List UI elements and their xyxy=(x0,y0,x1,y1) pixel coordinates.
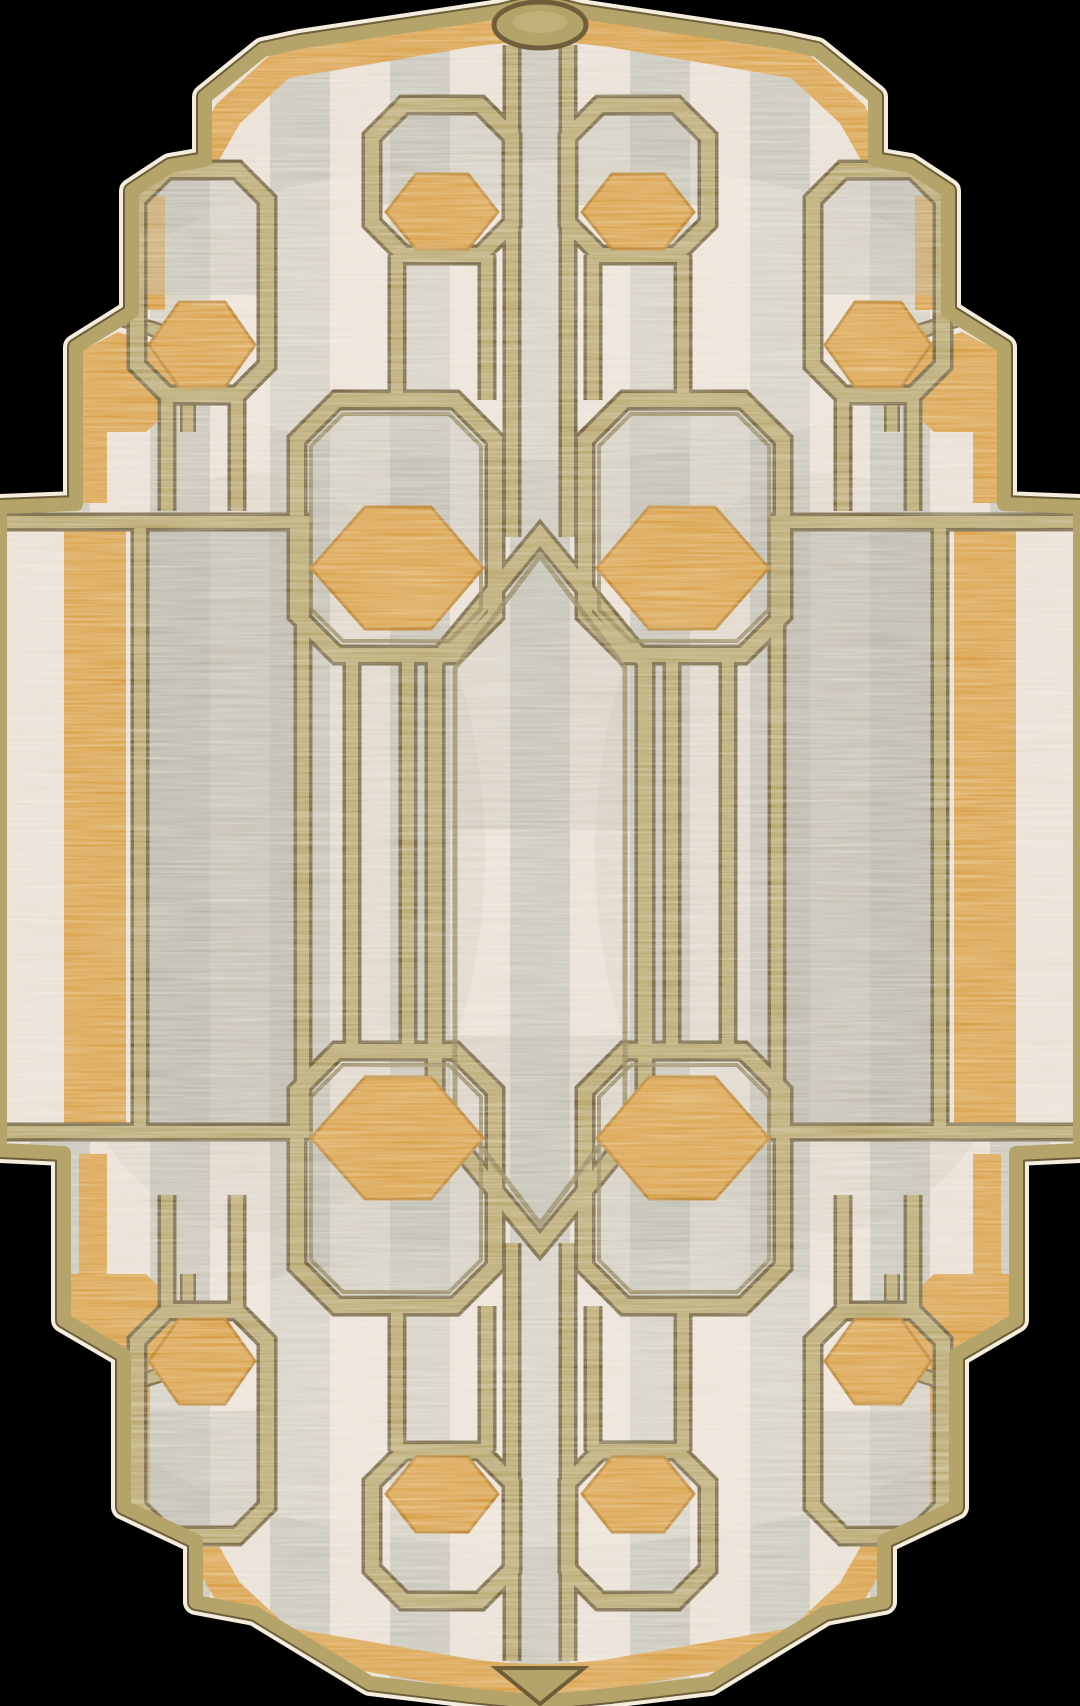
rug-product-photo: Art Deco shaped area rug with gold geome… xyxy=(0,0,1080,1706)
rug-svg: Art Deco shaped area rug with gold geome… xyxy=(0,0,1080,1706)
fabric-texture xyxy=(0,0,1080,1706)
top-medallion-highlight xyxy=(513,11,567,33)
